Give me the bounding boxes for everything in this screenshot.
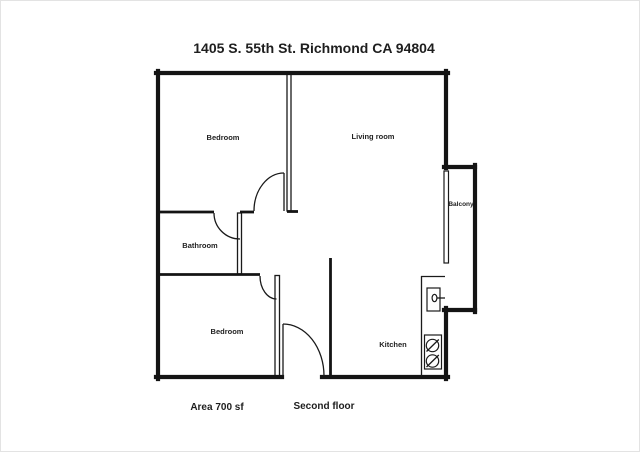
room-label-kitchen: Kitchen bbox=[379, 340, 407, 349]
wall-bathroom-right bbox=[238, 213, 242, 274]
wall-hallway-west bbox=[275, 276, 280, 377]
room-label-living-room: Living room bbox=[352, 132, 395, 141]
area-label: Area 700 sf bbox=[190, 402, 244, 413]
floor-label: Second floor bbox=[293, 401, 354, 412]
sliding-door-balcony bbox=[444, 171, 449, 263]
outer-walls bbox=[156, 71, 475, 379]
sink-icon bbox=[427, 288, 445, 311]
door-swing-bedroom-bottom bbox=[260, 276, 277, 299]
door-swing-bedroom-top bbox=[254, 173, 284, 211]
room-label-balcony: Balcony bbox=[448, 201, 474, 208]
room-label-bathroom: Bathroom bbox=[182, 241, 218, 250]
room-label-bedroom-bottom: Bedroom bbox=[211, 327, 244, 336]
plan-title: 1405 S. 55th St. Richmond CA 94804 bbox=[193, 40, 435, 56]
kitchen-fixtures bbox=[421, 276, 445, 376]
floor-plan-page: 1405 S. 55th St. Richmond CA 94804 Bedro… bbox=[0, 0, 640, 452]
interior-walls-solid bbox=[156, 212, 331, 378]
door-swing-entry bbox=[283, 324, 324, 376]
floor-plan-drawing: 1405 S. 55th St. Richmond CA 94804 Bedro… bbox=[1, 1, 640, 452]
wall-bedroom-living-divider bbox=[287, 74, 291, 211]
room-label-bedroom-top: Bedroom bbox=[207, 133, 240, 142]
stove-icon bbox=[425, 335, 442, 369]
door-swing-bathroom bbox=[214, 213, 240, 239]
